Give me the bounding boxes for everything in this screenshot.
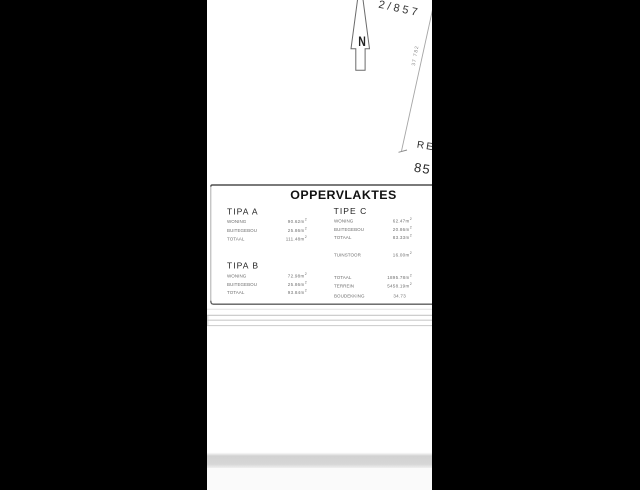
svg-text:2: 2: [305, 227, 307, 231]
svg-text:N: N: [358, 34, 366, 49]
svg-text:5458.19m: 5458.19m: [387, 284, 409, 289]
svg-text:2: 2: [305, 281, 307, 285]
svg-text:WONING: WONING: [334, 219, 354, 224]
svg-text:25.86m: 25.86m: [288, 282, 305, 287]
svg-text:2: 2: [410, 226, 412, 230]
svg-text:1895.78m: 1895.78m: [387, 275, 409, 280]
svg-text:72.98m: 72.98m: [288, 273, 305, 278]
svg-text:2: 2: [410, 274, 412, 278]
svg-text:62.47m: 62.47m: [393, 219, 410, 224]
svg-text:34.73: 34.73: [393, 294, 406, 299]
svg-text:25.86m: 25.86m: [288, 228, 305, 233]
svg-text:BUITEGEBOU: BUITEGEBOU: [227, 282, 257, 287]
svg-text:111.48m: 111.48m: [286, 237, 305, 242]
svg-text:93.84m: 93.84m: [288, 290, 305, 295]
svg-text:20.86m: 20.86m: [393, 227, 410, 232]
svg-text:BUITEGEBOU: BUITEGEBOU: [334, 227, 364, 232]
svg-text:2: 2: [410, 217, 412, 221]
svg-text:90.62m: 90.62m: [288, 219, 305, 224]
svg-text:TIPA B: TIPA B: [227, 261, 259, 271]
svg-text:BUITEGEBOU: BUITEGEBOU: [227, 228, 257, 233]
svg-text:BOUDEKKING: BOUDEKKING: [334, 294, 365, 299]
svg-text:2: 2: [305, 218, 307, 222]
svg-text:TOTAAL: TOTAAL: [334, 235, 352, 240]
svg-text:WONING: WONING: [227, 219, 247, 224]
svg-text:TUINSTOOR: TUINSTOOR: [334, 253, 362, 258]
svg-text:TERREIN: TERREIN: [334, 284, 354, 289]
svg-text:TIPA A: TIPA A: [227, 206, 259, 216]
svg-text:TOTAAL: TOTAAL: [227, 290, 245, 295]
svg-text:2: 2: [305, 289, 307, 293]
svg-text:2: 2: [305, 235, 307, 239]
svg-text:2: 2: [410, 282, 412, 286]
svg-text:83.33m: 83.33m: [393, 235, 410, 240]
svg-text:16.00m: 16.00m: [393, 253, 410, 258]
svg-text:2: 2: [410, 234, 412, 238]
svg-text:WONING: WONING: [227, 273, 247, 278]
svg-text:2: 2: [410, 251, 412, 255]
svg-text:TOTAAL: TOTAAL: [227, 237, 245, 242]
svg-text:OPPERVLAKTES: OPPERVLAKTES: [290, 188, 396, 202]
svg-text:2: 2: [305, 272, 307, 276]
svg-text:TOTAAL: TOTAAL: [334, 275, 352, 280]
svg-text:TIPE C: TIPE C: [334, 206, 368, 216]
